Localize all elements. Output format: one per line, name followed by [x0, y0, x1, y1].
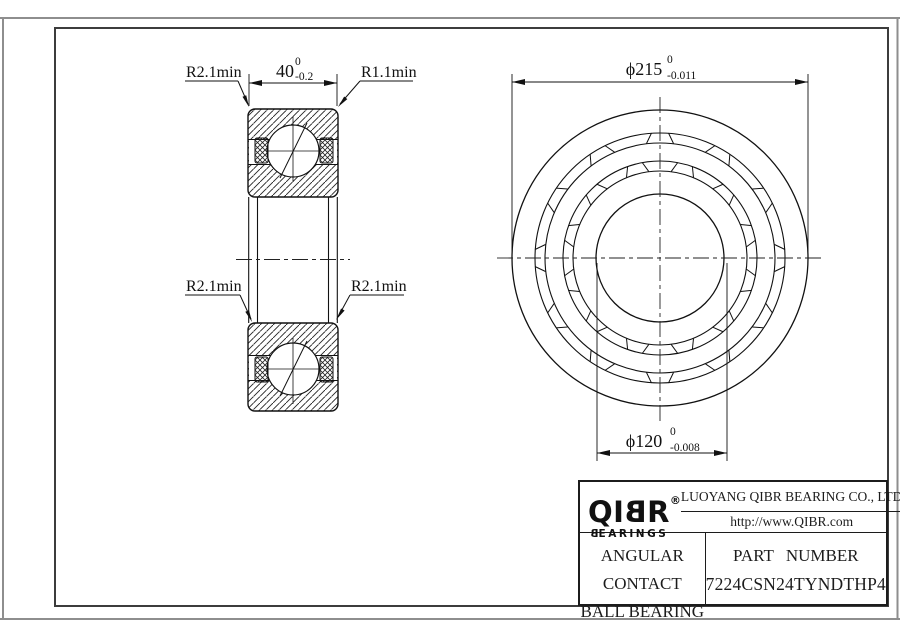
dim-120-tol-upper: 0	[670, 426, 676, 438]
part-number-cell: PART NUMBER 7224CSN24TYNDTHP4	[706, 533, 886, 604]
title-block-bottom-row: ANGULAR CONTACT BALL BEARING PART NUMBER…	[580, 532, 886, 604]
dim-40-value: 40	[276, 61, 294, 81]
label-r-top-right: R1.1min	[338, 64, 417, 107]
cage-section-right	[320, 138, 333, 163]
section-top-half	[248, 109, 338, 197]
bore-silhouette-lines	[249, 197, 338, 323]
dim-40-tol-lower: -0.2	[295, 71, 313, 83]
company-cell: LUOYANG QIBR BEARING CO., LTD http://www…	[681, 482, 900, 532]
title-block: QIBR® BEARINGS LUOYANG QIBR BEARING CO.,…	[578, 480, 888, 606]
label-r-mid-left: R2.1min	[185, 278, 252, 322]
dim-215-tol-upper: 0	[667, 54, 673, 66]
product-type-line2: BALL BEARING	[580, 598, 705, 626]
svg-text:R2.1min: R2.1min	[351, 278, 407, 295]
svg-text:R1.1min: R1.1min	[361, 64, 417, 81]
dim-215-value: ϕ215	[626, 59, 662, 79]
svg-text:R2.1min: R2.1min	[186, 64, 242, 81]
company-name: LUOYANG QIBR BEARING CO., LTD	[681, 482, 900, 512]
cage-section-left	[255, 138, 268, 163]
part-number-value: 7224CSN24TYNDTHP4	[706, 570, 886, 598]
dimension-width-40: 40 0 -0.2	[249, 56, 337, 106]
dimension-bore-120: ϕ120 0 -0.008	[597, 263, 727, 461]
section-bottom-half	[248, 323, 338, 411]
label-r-mid-right: R2.1min	[336, 278, 407, 320]
registered-trademark-icon: ®	[670, 494, 681, 507]
cage-section-right	[320, 357, 333, 382]
cage-section-left	[255, 357, 268, 382]
part-number-label: PART NUMBER	[706, 542, 886, 570]
dim-215-tol-lower: -0.011	[667, 70, 697, 82]
product-type-line1: ANGULAR CONTACT	[580, 542, 705, 598]
svg-text:R2.1min: R2.1min	[186, 278, 242, 295]
bearing-front-view	[497, 97, 823, 423]
company-website: http://www.QIBR.com	[681, 512, 900, 531]
drawing-sheet: 40 0 -0.2 R2.1min R1.1min R2.1min R2.1mi…	[0, 0, 900, 636]
logo-wordmark: QIBR®	[588, 486, 681, 527]
qibr-logo: QIBR® BEARINGS	[580, 482, 681, 532]
bearing-cross-section-view	[236, 109, 350, 411]
dim-120-value: ϕ120	[626, 431, 662, 451]
title-block-header-row: QIBR® BEARINGS LUOYANG QIBR BEARING CO.,…	[580, 482, 886, 532]
product-type-cell: ANGULAR CONTACT BALL BEARING	[580, 533, 706, 604]
dim-120-tol-lower: -0.008	[670, 442, 700, 454]
dim-40-tol-upper: 0	[295, 56, 301, 68]
label-r-top-left: R2.1min	[185, 64, 249, 107]
